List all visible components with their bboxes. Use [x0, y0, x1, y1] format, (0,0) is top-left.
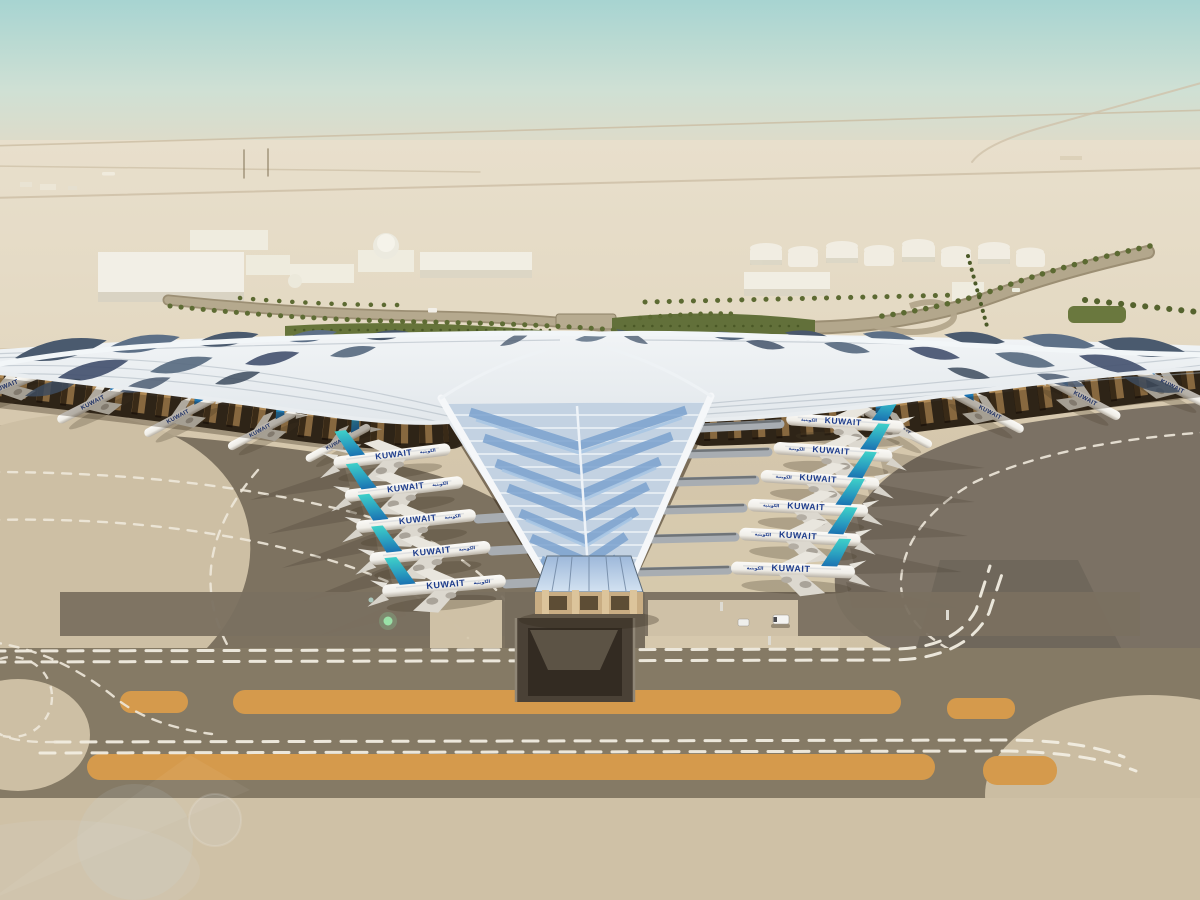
column [630, 590, 637, 614]
distant-vehicle [428, 308, 437, 313]
bollard [768, 636, 771, 645]
column [602, 590, 609, 614]
column [572, 590, 579, 614]
road-bridge [556, 314, 616, 329]
airport-rendering: KUWAIT الكويتية KUWAIT الكويتية KUWAIT K… [0, 0, 1200, 900]
bollard [720, 602, 723, 611]
service-ramp [516, 618, 634, 702]
service-car [738, 619, 749, 626]
column [542, 590, 549, 614]
small-dome [288, 274, 302, 288]
scene-rendering: KUWAIT الكويتية KUWAIT الكويتية KUWAIT K… [0, 0, 1200, 900]
bollard [946, 610, 949, 620]
distant-vehicle [1012, 288, 1020, 292]
